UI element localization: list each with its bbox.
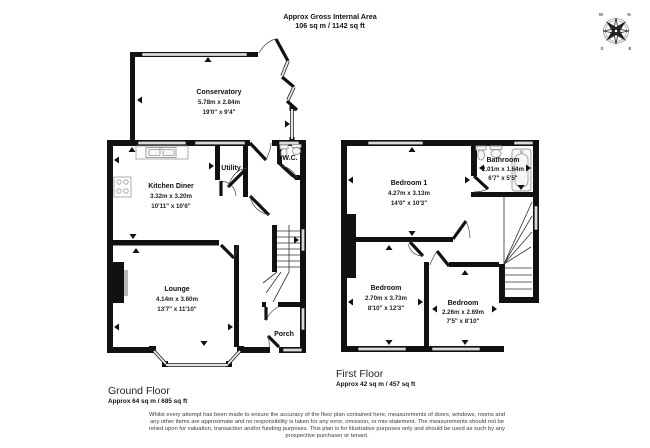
room-label-conservatory: Conservatory (196, 89, 241, 96)
room-dim-conservatory-m: 5.78m x 2.84m (198, 99, 240, 106)
room-dim-kitchen-ft: 10'11" x 10'6" (151, 203, 191, 210)
floorplan-page: Approx Gross Internal Area 106 sq m / 11… (0, 0, 650, 448)
room-dim-bedroom2-m: 2.70m x 3.73m (365, 295, 407, 302)
compass-e: E (628, 46, 631, 51)
floorplan-canvas: Approx Gross Internal Area 106 sq m / 11… (0, 0, 650, 448)
room-label-porch: Porch (274, 331, 294, 338)
ground-floor-doors (221, 39, 297, 347)
gross-area-value: 106 sq m / 1142 sq ft (295, 21, 365, 30)
first-floor-area: Approx 42 sq m / 457 sq ft (336, 381, 416, 388)
ground-floor-fixtures (114, 145, 301, 198)
room-dim-bedroom3-m: 2.26m x 2.69m (442, 309, 484, 316)
room-label-utility: Utility (221, 165, 241, 172)
room-label-bedroom2: Bedroom (371, 285, 402, 292)
room-dim-lounge-m: 4.14m x 3.60m (156, 296, 198, 303)
disclaimer-line-3: relied upon for valuation, transaction a… (149, 426, 505, 432)
kitchen-sink-icon (146, 148, 176, 158)
room-dim-bathroom-m: 2.01m x 1.64m (482, 166, 524, 173)
ground-floor-area: Approx 64 sq m / 685 sq ft (108, 398, 188, 405)
disclaimer-line-1: Whilst every attempt has been made to en… (149, 412, 505, 418)
compass-rose-icon: N E S W (599, 12, 632, 51)
room-dim-conservatory-ft: 19'0" x 9'4" (203, 109, 236, 116)
room-dim-bedroom1-m: 4.27m x 3.13m (388, 190, 430, 197)
room-dim-lounge-ft: 13'7" x 11'10" (157, 306, 197, 313)
compass-n: N (627, 12, 630, 17)
compass-w: W (599, 12, 604, 17)
stairs-first (504, 197, 532, 289)
ground-floor-title: Ground Floor (108, 385, 170, 397)
room-dim-bedroom1-ft: 14'0" x 10'3" (391, 200, 427, 207)
first-floor-title: First Floor (336, 368, 384, 380)
room-dim-kitchen-m: 3.32m x 3.20m (150, 193, 192, 200)
first-floor-plan: Bedroom 1 4.27m x 3.13m 14'0" x 10'3" Ba… (341, 140, 539, 352)
compass-s: S (600, 46, 603, 51)
wc-basin-icon (292, 145, 301, 155)
room-label-bathroom: Bathroom (486, 157, 519, 164)
gross-area-title: Approx Gross Internal Area (283, 12, 378, 21)
disclaimer: Whilst every attempt has been made to en… (149, 412, 505, 439)
room-label-bedroom3: Bedroom (448, 300, 479, 307)
toilet-icon (476, 146, 486, 160)
room-dim-bathroom-ft: 6'7" x 5'5" (488, 175, 518, 182)
room-label-wc: W.C. (282, 155, 297, 162)
room-dim-bedroom2-ft: 8'10" x 12'3" (368, 305, 404, 312)
room-dim-bedroom3-ft: 7'5" x 8'10" (447, 318, 480, 325)
room-label-bedroom1: Bedroom 1 (391, 180, 428, 187)
disclaimer-line-4: prospective purchaser or tenant. (285, 433, 369, 439)
disclaimer-line-2: any other items are approximate and no r… (150, 419, 504, 425)
fireplace (124, 270, 128, 296)
ground-floor-plan: Conservatory 5.78m x 2.84m 19'0" x 9'4" … (107, 39, 306, 367)
room-label-lounge: Lounge (164, 286, 189, 293)
floor-titles: Ground Floor Approx 64 sq m / 685 sq ft … (108, 368, 416, 405)
header: Approx Gross Internal Area 106 sq m / 11… (283, 12, 378, 30)
basin-icon (490, 146, 502, 158)
stove-icon (114, 177, 131, 197)
room-label-kitchen: Kitchen Diner (148, 183, 194, 190)
stairs-ground (263, 225, 300, 302)
